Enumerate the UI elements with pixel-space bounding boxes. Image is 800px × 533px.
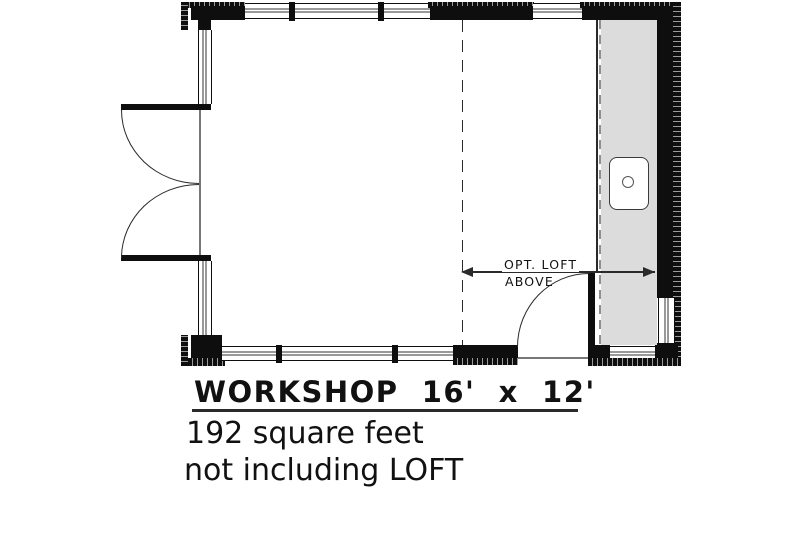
loft-extent-dashed-line (462, 20, 464, 345)
plan-note-text: not including LOFT (184, 456, 463, 486)
loft-label-line1: OPT. LOFT (502, 258, 579, 272)
entry-door-threshold (518, 357, 588, 359)
bottom-wall-siding-right (588, 358, 681, 366)
entry-door-leaf (588, 273, 595, 348)
arrow-left-icon (461, 267, 473, 277)
left-wall-segment-upper (198, 30, 212, 104)
arrow-right-icon (643, 267, 655, 277)
plan-area-text: 192 square feet (186, 419, 424, 449)
bottom-wall-siding-left (188, 358, 225, 366)
window-mullion (289, 2, 295, 21)
top-wall-pier (430, 6, 533, 20)
window-mullion (392, 345, 398, 363)
bottom-wall-pier (453, 345, 518, 358)
bottom-right-corner-post (655, 343, 678, 358)
loft-strip-dashed-edge (599, 20, 601, 345)
plan-title-underline (192, 409, 578, 412)
floor-plan-sheet: OPT. LOFT ABOVE WORKSHOP 16' x 12' 192 s… (0, 0, 800, 533)
loft-strip-wall-line (596, 20, 598, 273)
left-wall-segment-lower (198, 261, 212, 335)
double-door-threshold (199, 104, 201, 258)
left-wall-siding-top (181, 2, 188, 30)
top-left-corner-stub (198, 6, 211, 30)
double-door-swing-arc-top (121, 110, 199, 184)
sink-drain-icon (622, 176, 634, 188)
bottom-left-corner-post (191, 335, 222, 358)
right-wall-window (658, 298, 675, 343)
right-wall (657, 6, 673, 298)
bottom-wall-window-band (222, 346, 453, 361)
sink-icon (609, 157, 649, 210)
window-mullion (276, 345, 282, 363)
loft-label-line2: ABOVE (503, 275, 556, 289)
top-wall-window-right (533, 3, 582, 19)
plan-title: WORKSHOP 16' x 12' (194, 378, 596, 407)
left-wall-siding-bottom (181, 335, 188, 366)
top-wall-window-band (245, 3, 430, 19)
window-mullion (378, 2, 384, 21)
double-door-swing-arc-bottom (121, 184, 199, 258)
bottom-wall-siding-pier (453, 358, 518, 365)
